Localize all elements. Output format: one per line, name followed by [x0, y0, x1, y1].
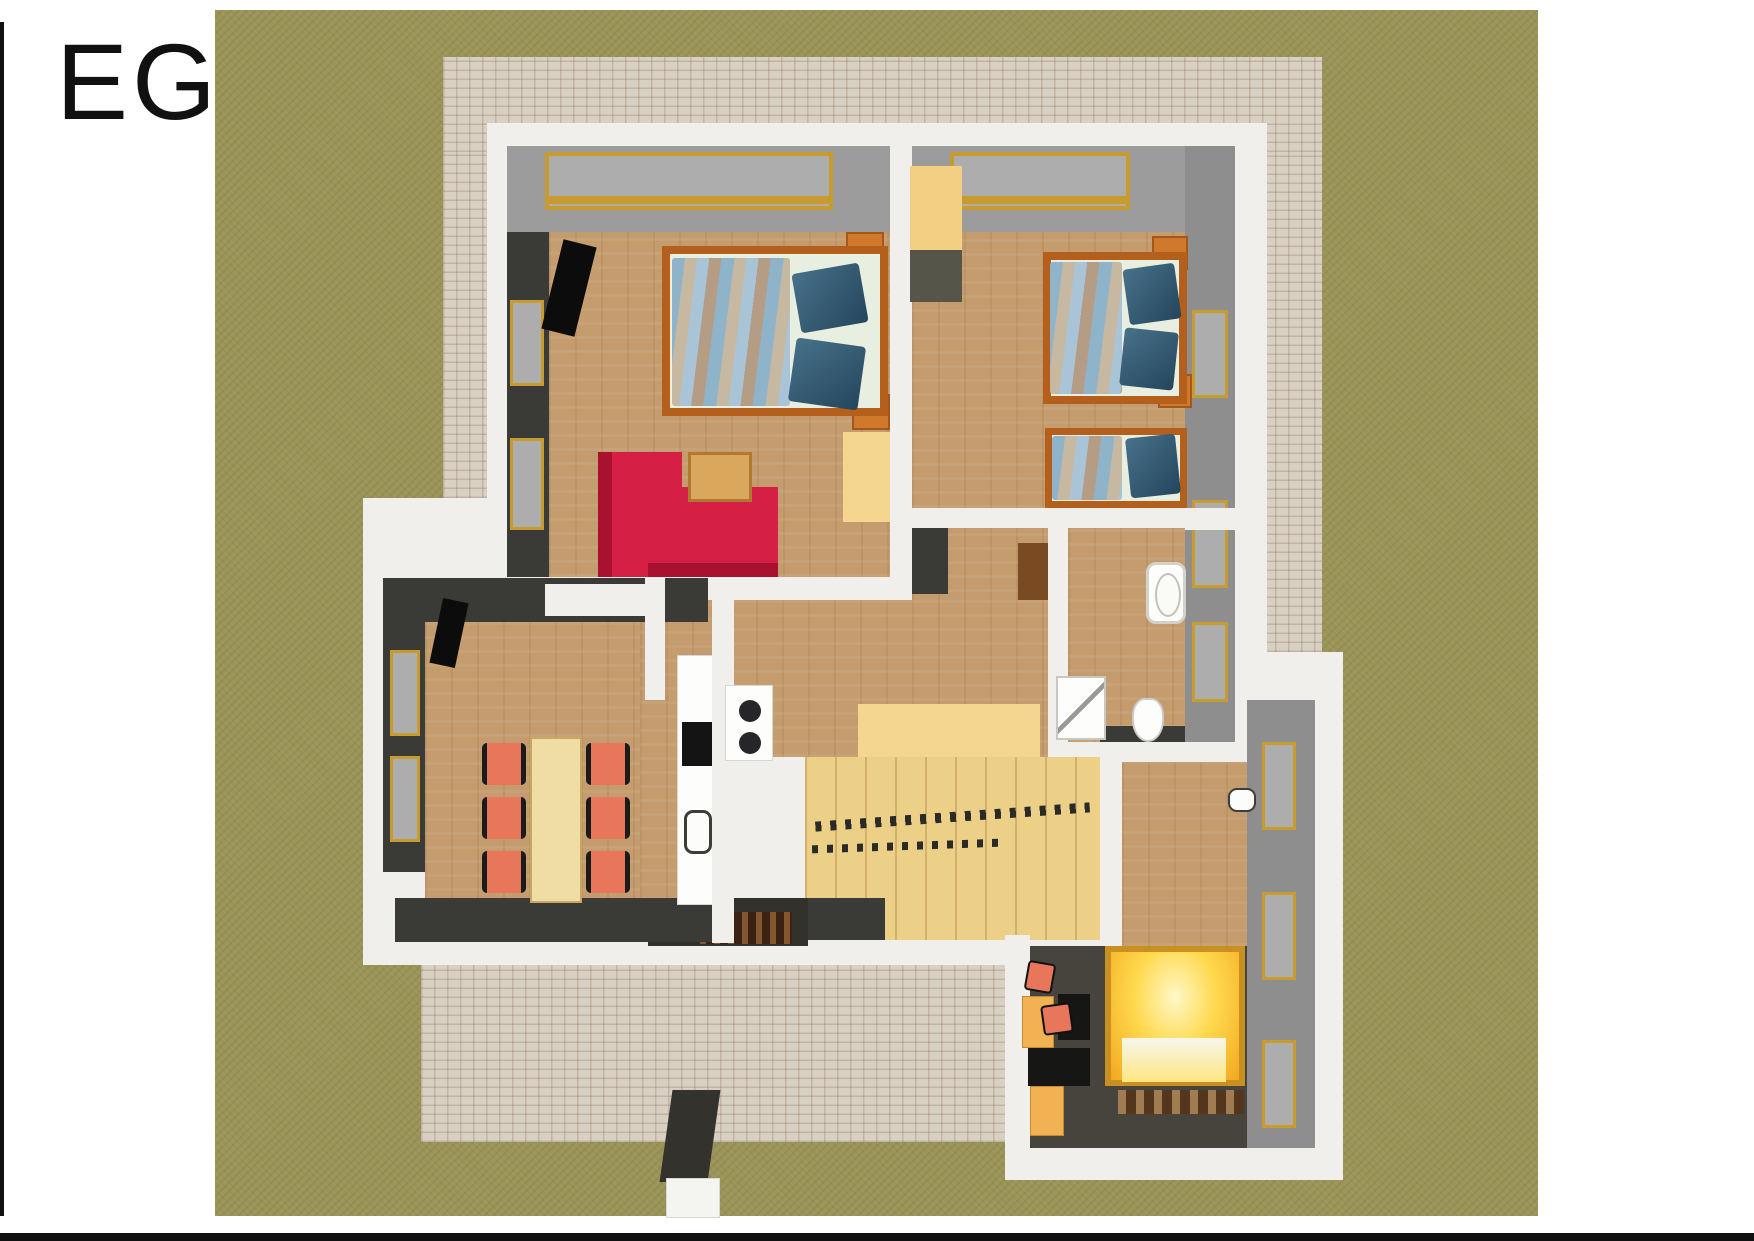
bedroom2-window-sill [953, 196, 1127, 204]
wall-stairs-corridor [1100, 762, 1122, 946]
stair-shadow [805, 898, 885, 940]
desk-cabinet-2 [1030, 1086, 1064, 1136]
floor-label: EG [56, 28, 220, 136]
chair-right-3 [586, 851, 630, 893]
desk-chair-2 [1040, 1002, 1074, 1036]
corridor-lower-floor [1122, 762, 1247, 946]
bed-glowing-pillow [1122, 1038, 1226, 1082]
bedroom1-window-left1 [510, 300, 544, 386]
wardrobe [910, 166, 962, 250]
shower [1056, 676, 1106, 740]
chair-left-2 [482, 797, 526, 839]
right-wall-window1 [1192, 310, 1228, 398]
dining-table [530, 737, 582, 903]
wing-window2 [1262, 892, 1296, 980]
desk-table-black [1028, 1048, 1090, 1086]
entrance-step [666, 1178, 720, 1218]
wall-dining-kitchen [645, 578, 665, 700]
coffee-table [688, 452, 752, 502]
patio-left [443, 152, 490, 498]
chair-right-1 [586, 743, 630, 785]
bed3-pillow [1125, 434, 1181, 499]
bedroom1-window-sill [548, 196, 830, 204]
bed1-blanket [672, 258, 790, 406]
wall-bedroom2-bottom [912, 508, 1235, 530]
burner-1 [739, 700, 761, 722]
wall-bedroom1-bedroom2 [890, 146, 912, 577]
dining-window2 [390, 756, 420, 842]
chair-left-3 [482, 851, 526, 893]
bed1-pillow2 [788, 337, 866, 410]
bedroom1-sideboard [843, 432, 890, 522]
bathtub [1146, 562, 1186, 624]
bed2-blanket [1050, 262, 1122, 394]
hallway-dark-wall [912, 528, 948, 594]
bathtub-basin [1155, 573, 1181, 617]
chair-right-2 [586, 797, 630, 839]
right-wall-window3 [1192, 622, 1228, 702]
page-border-bottom [0, 1233, 1754, 1241]
wardrobe-front [910, 250, 962, 302]
hallway-cabinet [1018, 543, 1048, 607]
chair-left-1 [482, 743, 526, 785]
cooktop-black [682, 722, 712, 766]
dining-top-window [545, 584, 645, 616]
dining-bottom-wall [395, 898, 725, 942]
corridor-bench [858, 704, 1040, 757]
dining-window1 [390, 650, 420, 736]
toilet [1132, 698, 1164, 742]
wing-window3 [1262, 1040, 1296, 1128]
bed2-pillow2 [1119, 327, 1179, 390]
floorplan-page: EG [0, 0, 1754, 1241]
wing-window1 [1262, 742, 1296, 830]
kitchen-counter [678, 656, 712, 904]
wall-kitchen-hall [712, 600, 734, 943]
bed3-blanket [1052, 436, 1122, 500]
kitchen-sink [684, 810, 712, 854]
wc-sink [1228, 788, 1256, 812]
bed2-pillow1 [1122, 263, 1181, 326]
burner-2 [739, 732, 761, 754]
desk-chair-1 [1024, 960, 1057, 994]
bed-rug [1118, 1090, 1244, 1114]
bed1-pillow1 [791, 263, 868, 334]
bedroom1-window-left2 [510, 438, 544, 530]
page-border-left [0, 22, 4, 1216]
